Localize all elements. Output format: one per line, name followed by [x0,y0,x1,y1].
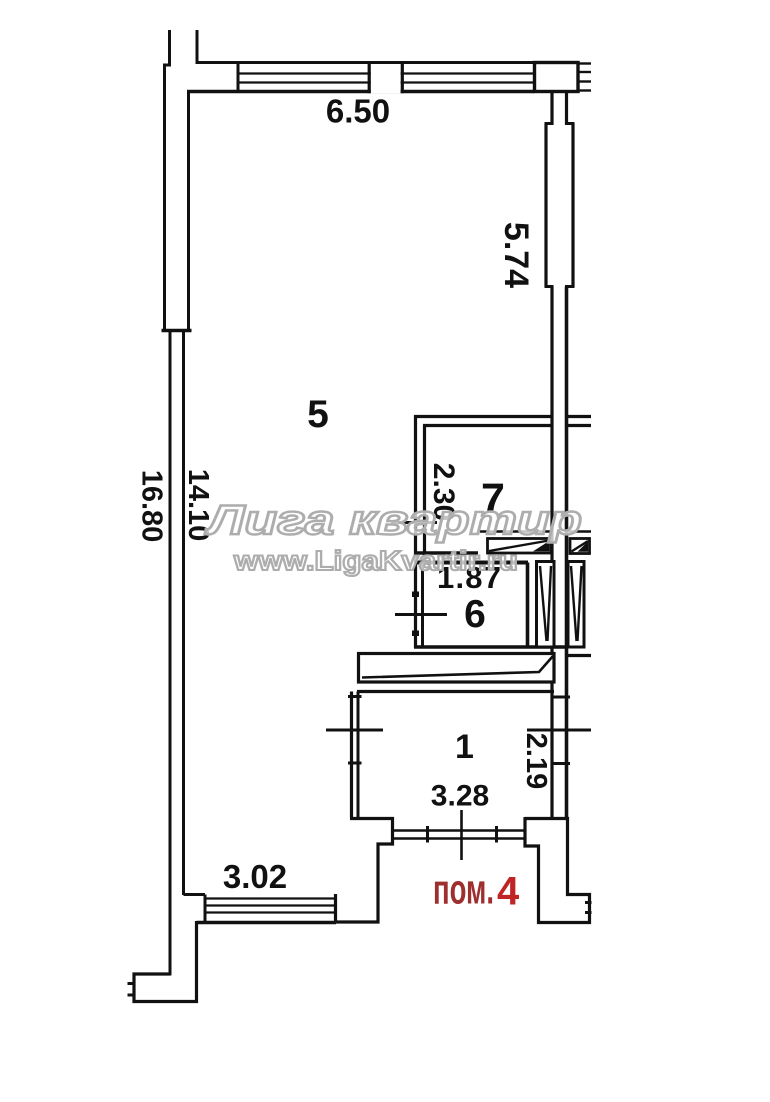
svg-text:Лига квартир: Лига квартир [204,496,582,543]
svg-text:5: 5 [307,393,329,436]
svg-text:1: 1 [455,728,474,766]
svg-text:6: 6 [464,593,486,636]
svg-text:6.50: 6.50 [326,93,390,130]
svg-text:2.19: 2.19 [520,733,552,789]
svg-text:4: 4 [497,870,520,914]
svg-text:5.74: 5.74 [497,222,535,288]
svg-text:3.28: 3.28 [431,780,489,813]
svg-text:16.80: 16.80 [136,470,168,543]
svg-text:3.02: 3.02 [223,858,287,895]
svg-text:www.LigaKvartir.ru: www.LigaKvartir.ru [233,545,518,576]
svg-text:пом.: пом. [433,866,494,913]
